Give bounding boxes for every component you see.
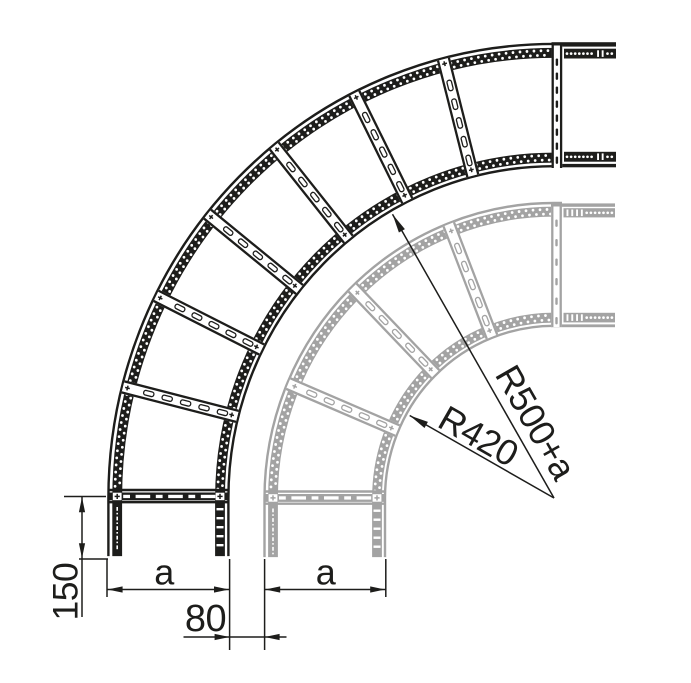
svg-text:150: 150 xyxy=(46,563,86,621)
svg-text:a: a xyxy=(154,552,175,593)
svg-text:a: a xyxy=(316,552,337,593)
svg-text:80: 80 xyxy=(185,598,226,640)
